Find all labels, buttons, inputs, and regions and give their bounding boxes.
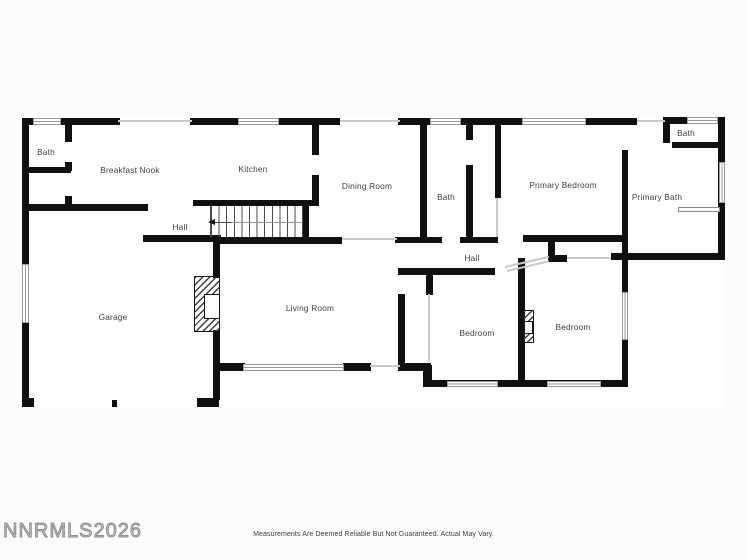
- window: [243, 364, 344, 371]
- room-label-bath-middle: Bath: [437, 192, 455, 202]
- wall-segment: [213, 363, 245, 371]
- room-label-bedroom-left: Bedroom: [459, 328, 494, 338]
- measurement-disclaimer: Measurements Are Deemed Reliable But Not…: [0, 531, 747, 538]
- wall-segment: [627, 253, 723, 260]
- wall-segment: [420, 123, 427, 237]
- wall-segment: [22, 204, 148, 211]
- room-label-bath-top-left: Bath: [37, 147, 55, 157]
- wall-segment: [398, 294, 405, 365]
- faint-line: [428, 294, 430, 362]
- window: [447, 381, 498, 387]
- room-label-bedroom-right: Bedroom: [555, 322, 590, 332]
- floor-plan-page: BathBreakfast NookKitchenDining RoomBath…: [0, 0, 747, 560]
- stairs-direction-line: [214, 222, 232, 223]
- wall-segment: [622, 150, 628, 242]
- wall-segment: [22, 398, 34, 407]
- wall-segment: [495, 123, 501, 198]
- room-label-primary-bedroom: Primary Bedroom: [529, 180, 597, 190]
- room-label-garage: Garage: [99, 312, 128, 322]
- wall-segment: [395, 237, 442, 243]
- wall-segment: [460, 237, 498, 243]
- wall-segment: [25, 167, 71, 173]
- window: [547, 381, 601, 387]
- fireplace-firebox: [204, 294, 220, 319]
- wall-segment: [398, 268, 495, 275]
- vanity-counter: [678, 207, 720, 212]
- wall-segment: [466, 123, 473, 140]
- faint-line: [118, 120, 192, 122]
- faint-line: [370, 365, 400, 367]
- room-label-primary-bath: Primary Bath: [632, 192, 682, 202]
- wall-segment: [466, 165, 473, 237]
- room-label-bath-top-right: Bath: [677, 128, 695, 138]
- room-label-kitchen: Kitchen: [238, 164, 267, 174]
- room-label-hall-west: Hall: [172, 222, 187, 232]
- garage-door-mark: [112, 400, 117, 407]
- wall-segment: [426, 268, 433, 295]
- room-label-breakfast-nook: Breakfast Nook: [100, 165, 160, 175]
- wall-segment: [622, 340, 628, 387]
- faint-line: [637, 120, 665, 122]
- faint-line: [340, 120, 400, 122]
- window: [33, 118, 61, 125]
- wall-segment: [343, 363, 371, 371]
- window: [687, 117, 718, 124]
- wall-segment: [622, 240, 628, 292]
- window: [238, 118, 279, 125]
- wall-segment: [523, 235, 628, 242]
- room-label-living-room: Living Room: [286, 303, 334, 313]
- window: [719, 162, 725, 203]
- faint-line: [567, 257, 611, 259]
- wall-segment: [312, 175, 319, 206]
- wall-segment: [22, 118, 29, 407]
- window: [622, 292, 628, 340]
- faint-line: [342, 238, 397, 240]
- fireplace-firebox: [524, 321, 533, 334]
- room-label-dining-room: Dining Room: [342, 181, 392, 191]
- wall-segment: [611, 253, 622, 260]
- window: [22, 264, 29, 323]
- wall-segment: [65, 118, 72, 142]
- wall-segment: [213, 237, 342, 244]
- floor-plan-canvas: BathBreakfast NookKitchenDining RoomBath…: [0, 0, 747, 560]
- stairs-arrow-icon: [208, 219, 215, 225]
- window: [430, 118, 461, 125]
- wall-segment: [312, 118, 319, 155]
- window: [522, 118, 586, 125]
- wall-segment: [213, 238, 220, 278]
- wall-segment: [672, 142, 723, 148]
- room-label-hall-east: Hall: [464, 253, 479, 263]
- faint-line: [496, 198, 498, 237]
- wall-segment: [302, 204, 309, 237]
- wall-segment: [548, 255, 567, 262]
